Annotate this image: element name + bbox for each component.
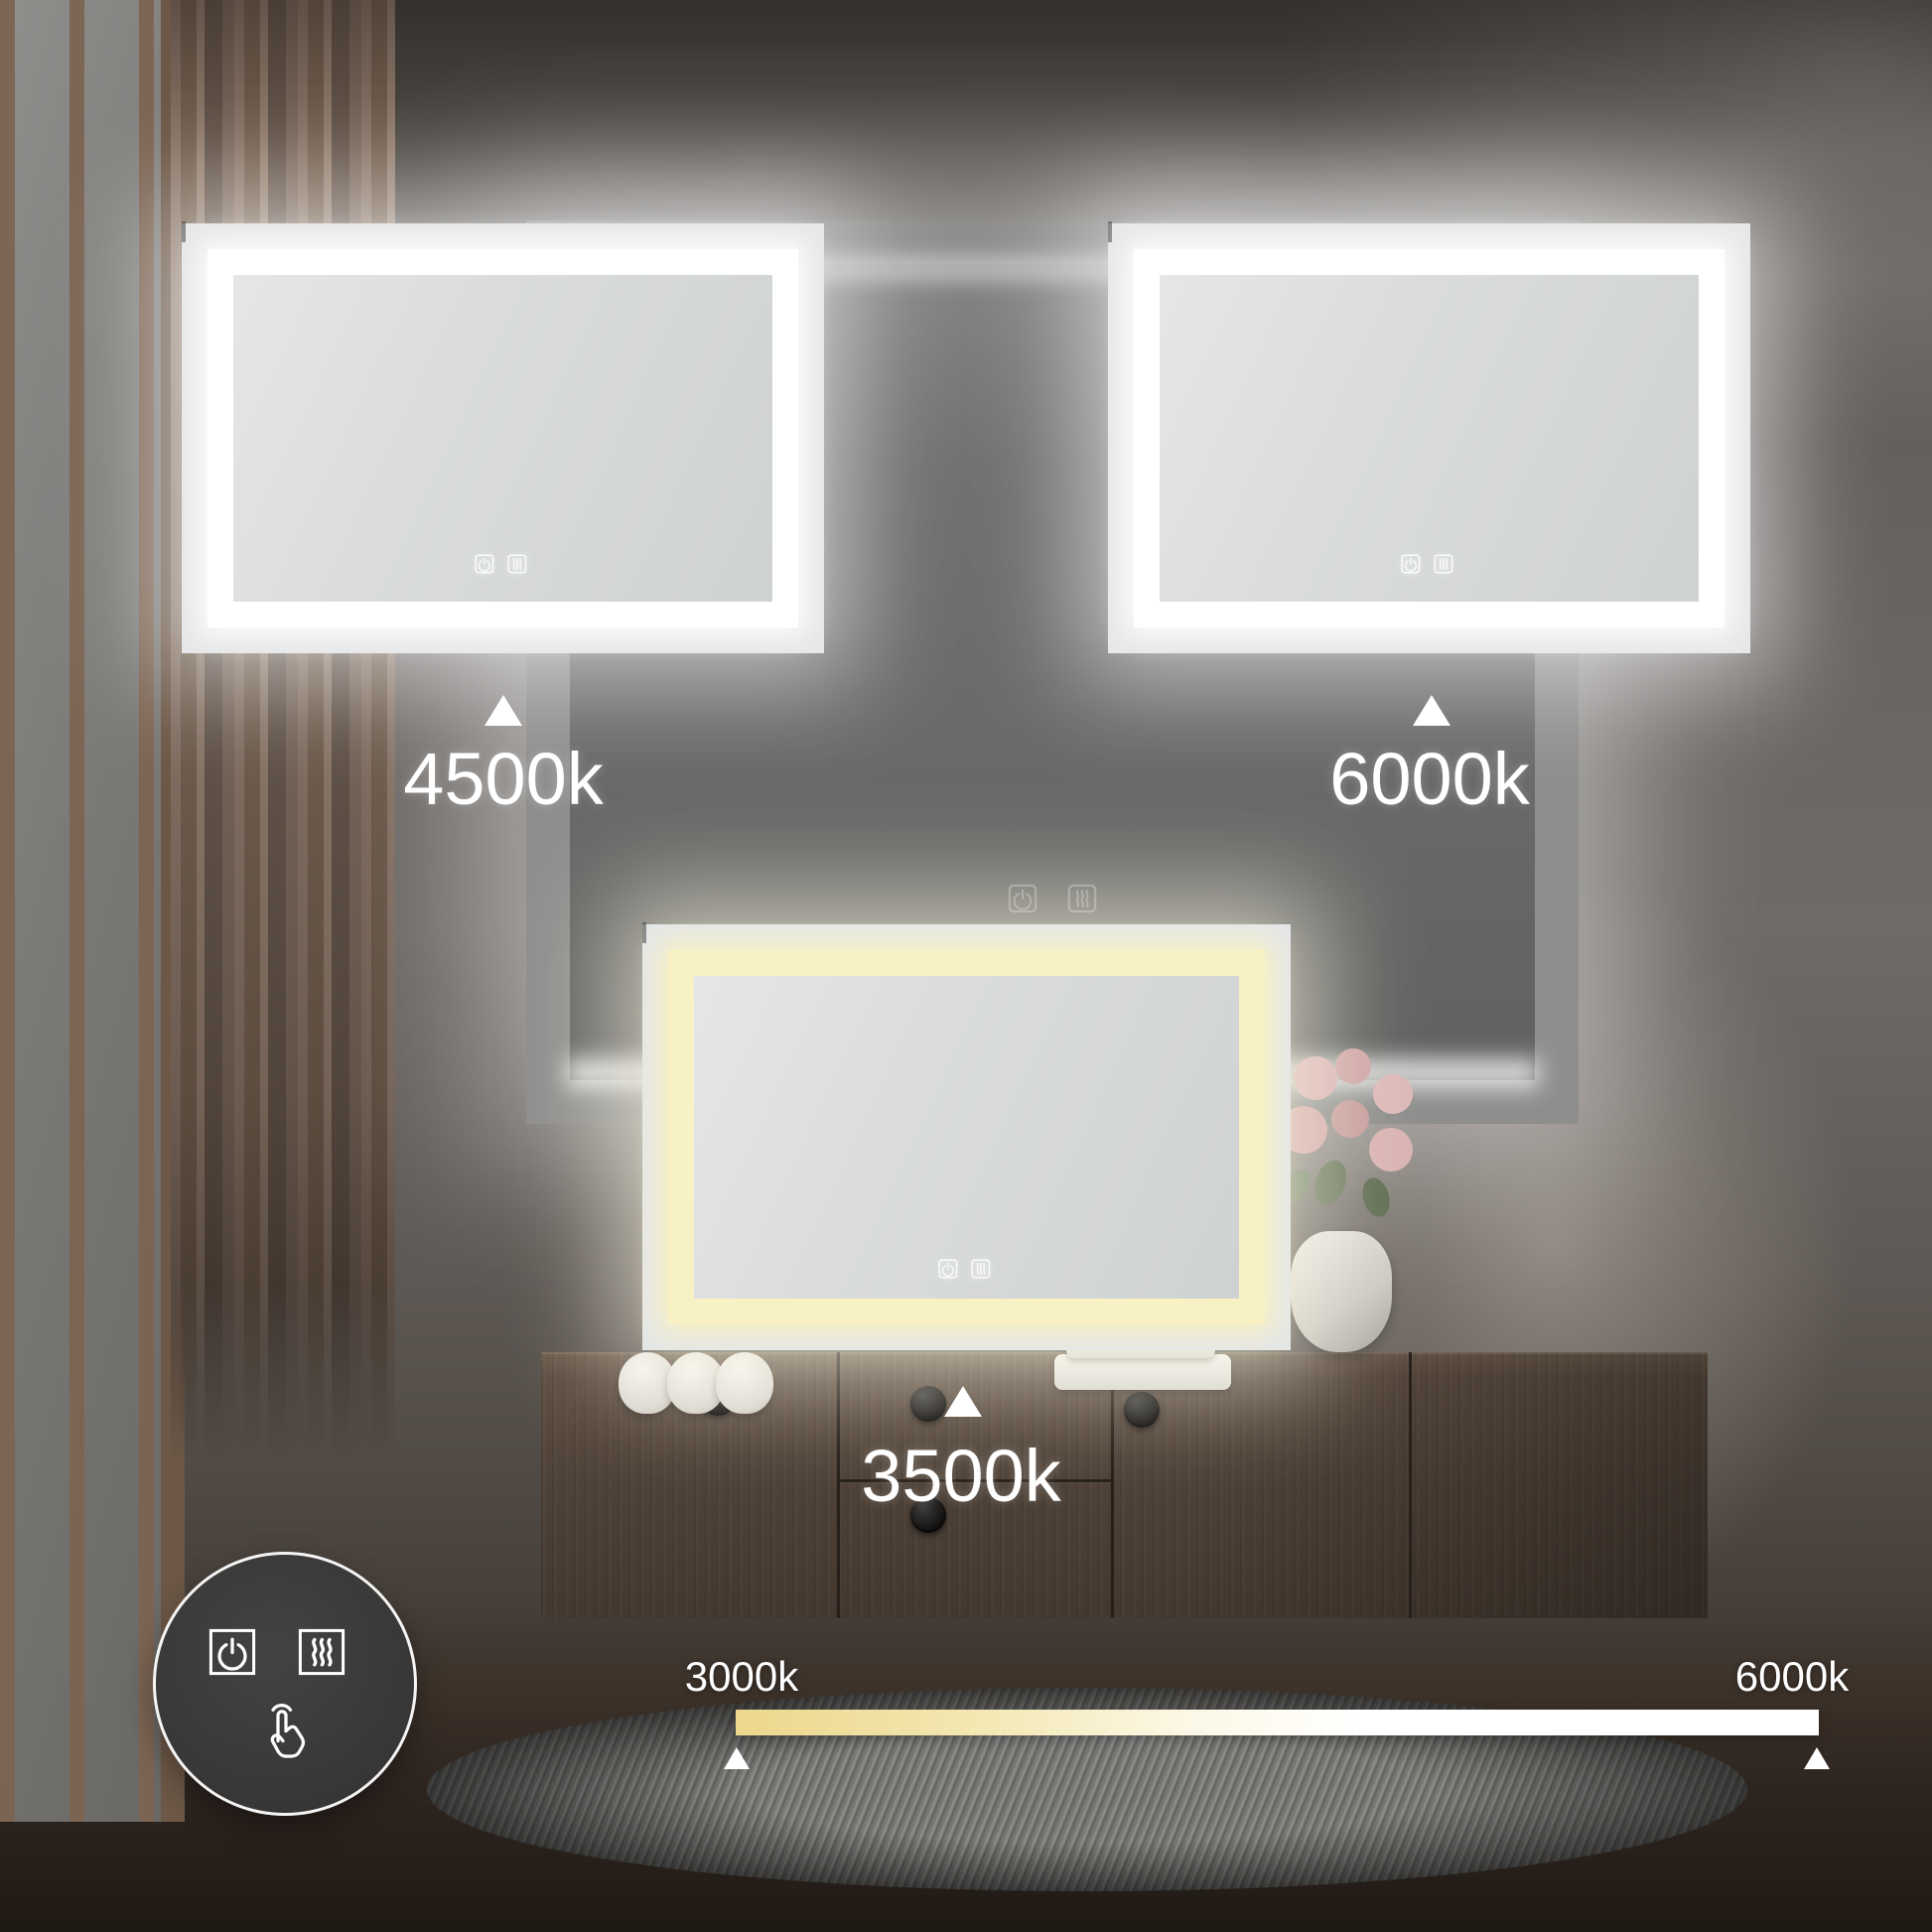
slider-max-label: 6000k [1735, 1656, 1849, 1698]
defogger-icon [298, 1628, 345, 1676]
mirror-face [233, 275, 772, 602]
temperature-label-3500k: 3500k [861, 1440, 1061, 1513]
touch-gesture-icon [253, 1694, 313, 1763]
pointer-triangle [944, 1386, 982, 1417]
mirror-6000k [1108, 223, 1750, 653]
temperature-label-6000k: 6000k [1329, 743, 1530, 816]
touch-control-badge [153, 1552, 417, 1816]
touch-buttons [474, 554, 526, 574]
slider-max-marker [1804, 1747, 1830, 1769]
slider-min-label: 3000k [685, 1656, 798, 1698]
mirror-face [694, 976, 1239, 1299]
temperature-label-4500k: 4500k [403, 743, 604, 816]
power-icon [1400, 554, 1420, 574]
scene: 4500k 6000k 3500k 3000k 6000k [0, 0, 1932, 1932]
pointer-triangle [484, 695, 522, 726]
touch-buttons [937, 1259, 990, 1279]
slider-min-marker [724, 1747, 750, 1769]
mirror-4500k [182, 223, 824, 653]
power-icon [208, 1628, 256, 1676]
mirror-3500k [642, 924, 1291, 1350]
defogger-icon [506, 554, 526, 574]
power-icon [474, 554, 493, 574]
mirror-face [1160, 275, 1699, 602]
touch-buttons [1400, 554, 1452, 574]
color-temperature-gradient-bar [736, 1710, 1819, 1735]
defogger-icon [970, 1259, 990, 1279]
pointer-triangle [1413, 695, 1450, 726]
defogger-icon [1433, 554, 1452, 574]
power-icon [937, 1259, 957, 1279]
